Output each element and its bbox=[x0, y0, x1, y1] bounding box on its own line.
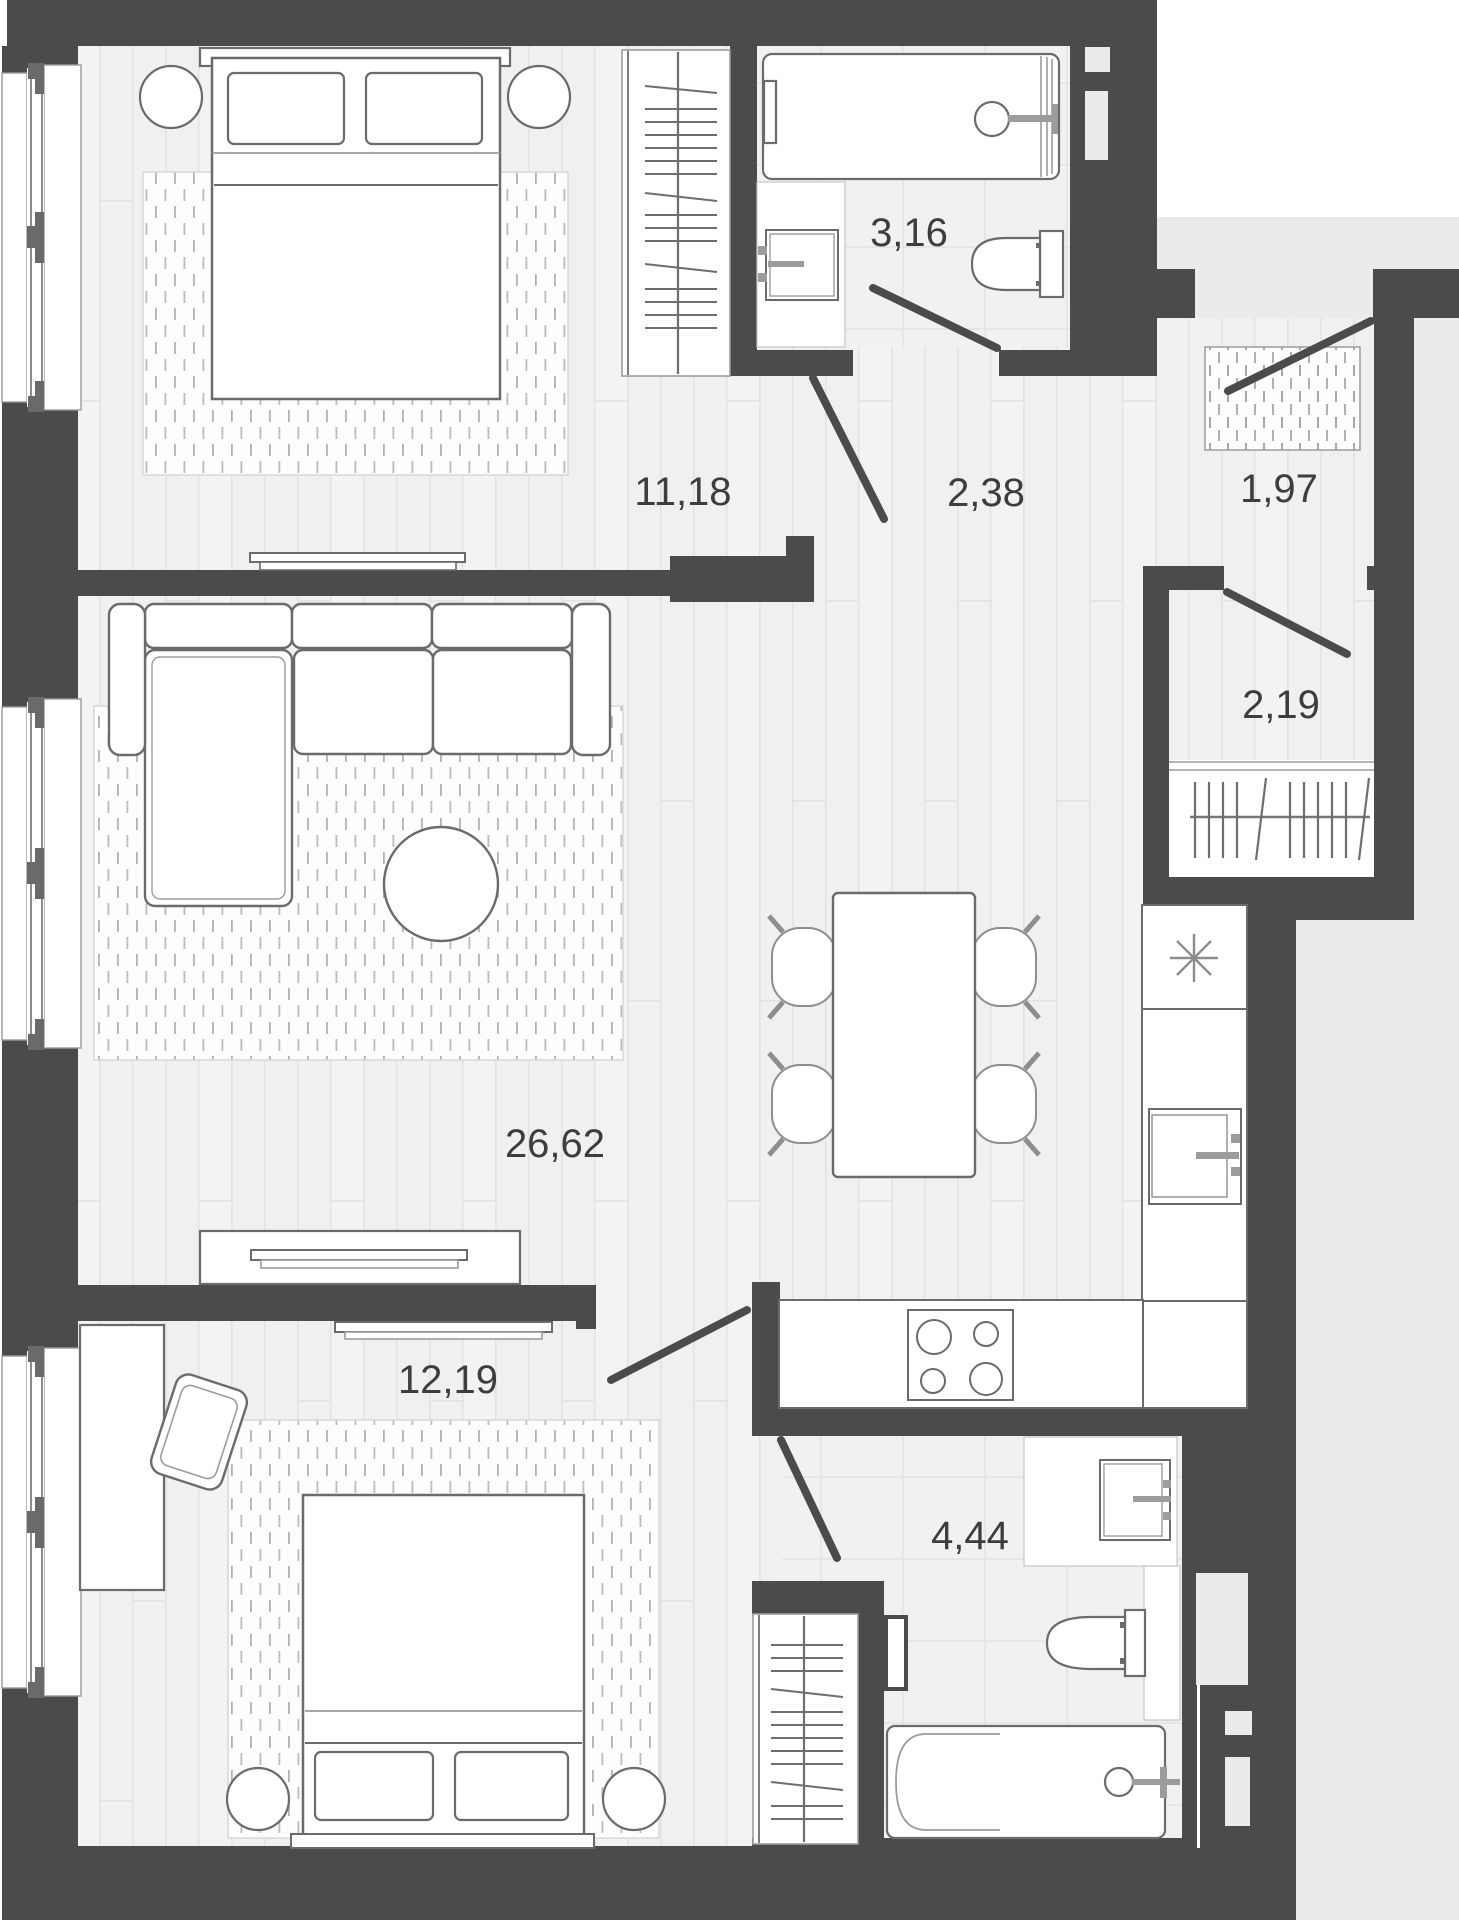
svg-text:26,62: 26,62 bbox=[505, 1122, 605, 1166]
svg-text:11,18: 11,18 bbox=[634, 470, 731, 514]
svg-text:1,97: 1,97 bbox=[1240, 467, 1318, 511]
svg-text:12,19: 12,19 bbox=[398, 1358, 498, 1402]
svg-text:4,44: 4,44 bbox=[931, 1514, 1009, 1558]
svg-text:3,16: 3,16 bbox=[870, 211, 948, 255]
svg-text:2,19: 2,19 bbox=[1242, 683, 1320, 727]
svg-text:2,38: 2,38 bbox=[947, 471, 1025, 515]
